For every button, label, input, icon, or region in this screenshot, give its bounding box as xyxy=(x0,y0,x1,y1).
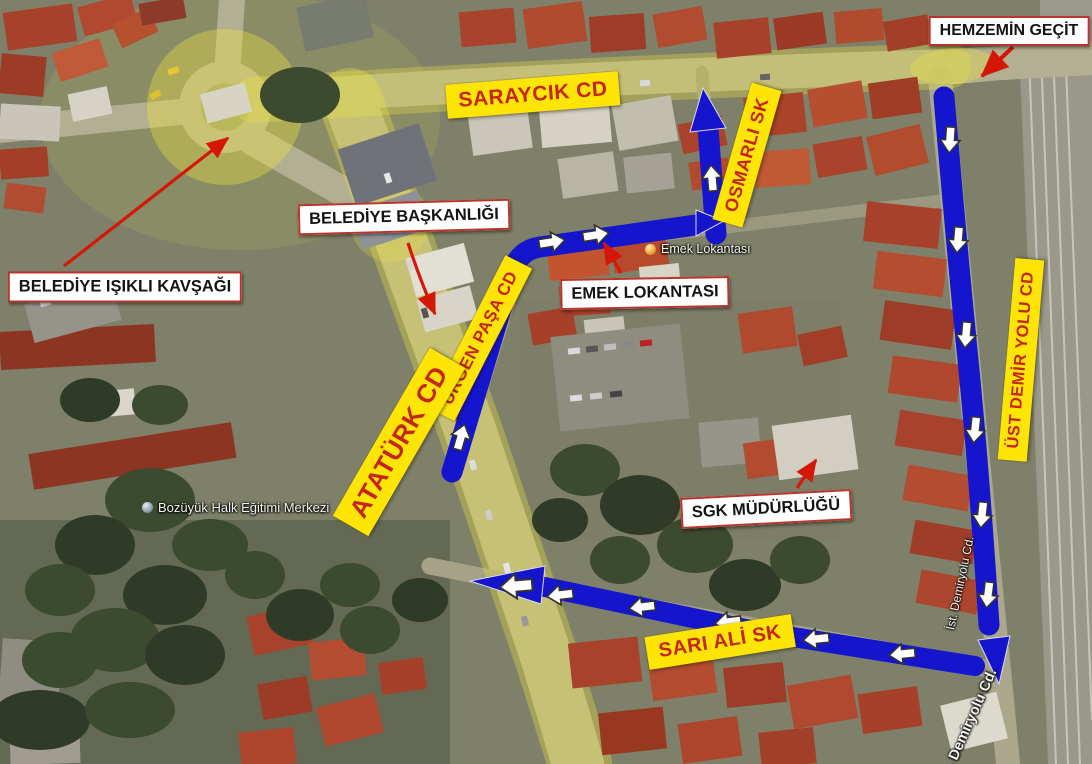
pointer-baskanligi-arrow xyxy=(408,243,435,314)
poi-marker-icon xyxy=(142,502,153,513)
callout-belediye-isikli-kavsagi: BELEDİYE IŞIKLI KAVŞAĞI xyxy=(8,272,242,303)
poi-marker-icon xyxy=(645,244,656,255)
poi-label: Bozüyük Halk Eğitimi Merkezi xyxy=(158,500,329,515)
pointer-hemzemin-arrow xyxy=(982,47,1013,76)
arrowhead-up-icon xyxy=(690,88,726,132)
poi-emek-lokantasi: Emek Lokantası xyxy=(645,242,751,256)
poi-label: Emek Lokantası xyxy=(661,242,751,256)
pointer-emek-arrow xyxy=(604,243,621,273)
callout-emek-lokantasi: EMEK LOKANTASI xyxy=(560,276,730,310)
pointer-sgk-arrow xyxy=(797,460,816,488)
pointer-kavsagi-arrow xyxy=(64,138,228,266)
route-overlay xyxy=(0,0,1092,764)
annotated-satellite-map: Bozüyük Halk Eğitimi Merkezi Emek Lokant… xyxy=(0,0,1092,764)
poi-bozuyuk-halk-egitimi: Bozüyük Halk Eğitimi Merkezi xyxy=(142,500,329,515)
callout-belediye-baskanligi: BELEDİYE BAŞKANLIĞI xyxy=(298,199,511,236)
callout-hemzemin-gecit: HEMZEMİN GEÇİT xyxy=(929,16,1090,46)
pointer-arrows xyxy=(64,47,1013,488)
